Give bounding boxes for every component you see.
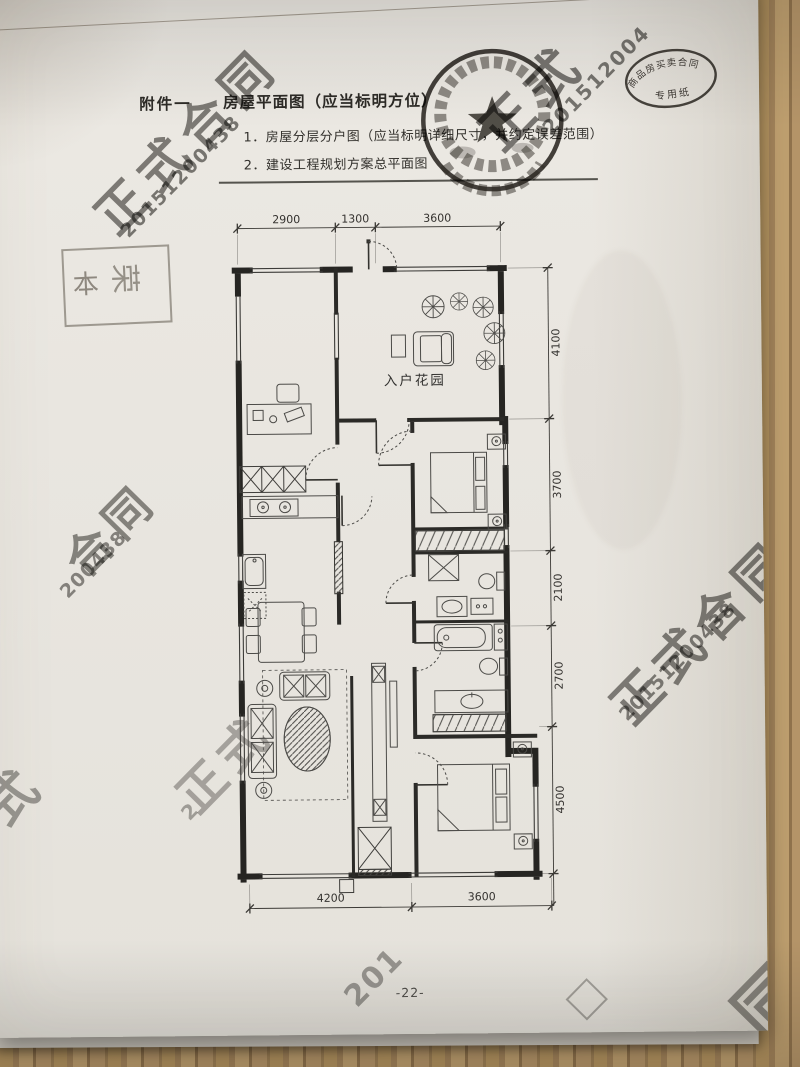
- square-stamp-char-right: 荣: [105, 262, 150, 294]
- round-official-seal: [403, 31, 581, 209]
- watermark-bottom-right-text: 合同: [640, 920, 768, 1038]
- garden-armchair: [391, 332, 453, 367]
- living-room: [248, 670, 348, 801]
- page-number: -22-: [396, 985, 425, 1000]
- oval-paper-stamp: 商品房买卖合同 专用纸: [619, 41, 724, 116]
- dim-top-3: 3600: [423, 212, 451, 225]
- paper-crease: [0, 0, 608, 31]
- dim-right-3: 2100: [552, 573, 565, 601]
- watermark-mid-left-text: 合同: [47, 466, 170, 589]
- utility-shaft: [358, 827, 391, 875]
- door-swing-arcs: [303, 241, 447, 786]
- study-desk: [247, 384, 311, 435]
- dim-right-5: 4500: [554, 785, 567, 813]
- dim-top-1: 2900: [272, 213, 300, 226]
- svg-text:商品房买卖合同: 商品房买卖合同: [623, 53, 703, 91]
- doors: [303, 239, 447, 786]
- dim-bottom-2: 3600: [468, 890, 496, 903]
- dim-right-2: 3700: [551, 470, 564, 498]
- dining-set: [246, 602, 317, 663]
- contract-page: 附件一 房屋平面图（应当标明方位） 1．房屋分层分户图（应当标明详细尺寸，并约定…: [0, 0, 768, 1038]
- oval-stamp-line2: 专用纸: [654, 85, 691, 103]
- tv-partition: [372, 663, 399, 821]
- oval-stamp-line1: 商品房买卖合同: [623, 53, 703, 91]
- photo-of-contract-page: 附件一 房屋平面图（应当标明方位） 1．房屋分层分户图（应当标明详细尺寸，并约定…: [0, 0, 800, 1067]
- star-icon: [468, 96, 517, 143]
- wardrobe-1: [415, 530, 504, 551]
- watermark-bottom-center-number: 201: [338, 941, 411, 1014]
- bedroom-2: [437, 742, 532, 850]
- bedroom-1: [430, 434, 506, 530]
- bathroom-2: [434, 624, 508, 713]
- door-leaves: [303, 241, 447, 786]
- dim-top-2: 1300: [341, 212, 369, 225]
- watermark-left-edge-text: 式: [0, 753, 52, 839]
- square-stamp-char-left: 本: [72, 264, 100, 302]
- watermark-partial-character-outline: [566, 978, 608, 1020]
- dim-right-1: 4100: [549, 329, 562, 357]
- dimension-labels: 2900 1300 3600 4100 3700 2100 2700 4500 …: [272, 211, 568, 906]
- garden-room-label: 入户花园: [384, 372, 446, 390]
- study-cabinet: [240, 466, 306, 493]
- kitchen-fixtures: [242, 496, 339, 619]
- dim-right-4: 2700: [553, 661, 566, 689]
- kitchen-sliding-door-pocket: [334, 542, 342, 594]
- floor-plan: 2900 1300 3600 4100 3700 2100 2700 4500 …: [227, 205, 597, 923]
- square-approval-stamp: 本 荣: [61, 244, 172, 327]
- list-item-2: 2．建设工程规划方案总平面图: [244, 153, 428, 174]
- dim-bottom-1: 4200: [317, 892, 345, 905]
- wardrobe-2: [433, 714, 506, 732]
- bathroom-1: [428, 554, 505, 617]
